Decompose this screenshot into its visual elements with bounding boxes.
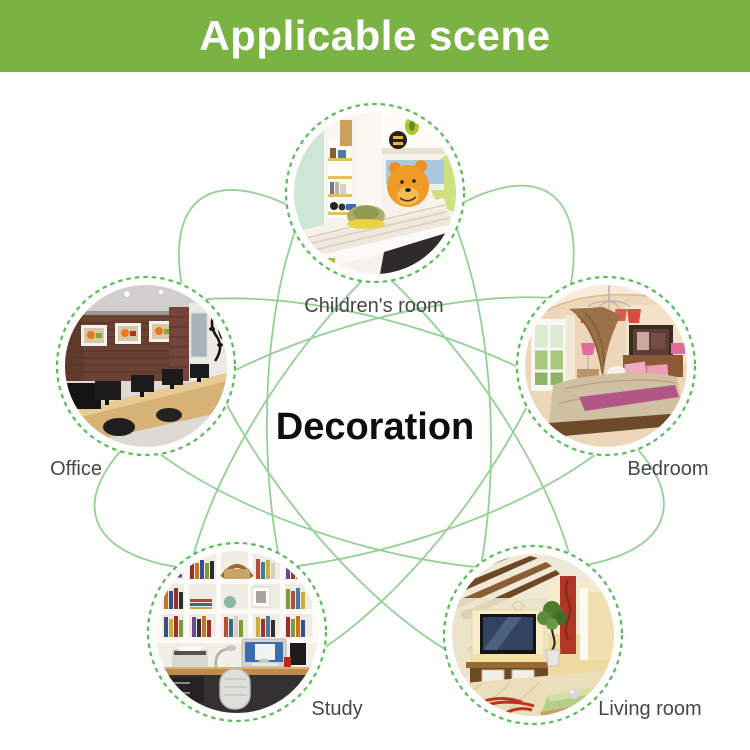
- living-room-label: Living room: [598, 698, 701, 721]
- bedroom-label: Bedroom: [627, 458, 708, 481]
- tv-stand: [466, 662, 552, 668]
- center-title: Decoration: [276, 406, 474, 449]
- living-room-photo: [452, 554, 614, 716]
- pink-lamp-right: [671, 343, 685, 354]
- pink-lamp-left: [581, 343, 595, 355]
- study-label: Study: [311, 698, 362, 721]
- pencil-cup: [284, 657, 291, 667]
- giraffe-plush: [340, 120, 352, 146]
- office-label: Office: [50, 458, 102, 481]
- penguin-toy: [330, 202, 338, 210]
- bedroom-photo: [525, 285, 687, 447]
- scene-diagram: [0, 0, 750, 750]
- office-photo: [65, 285, 227, 447]
- children-room-label: Children's room: [304, 295, 443, 318]
- office-chair: [103, 418, 135, 436]
- study-photo: [156, 551, 318, 713]
- product-infographic: Applicable scene: [0, 0, 750, 750]
- desk-chair: [220, 669, 250, 709]
- bee-plush: [389, 131, 407, 149]
